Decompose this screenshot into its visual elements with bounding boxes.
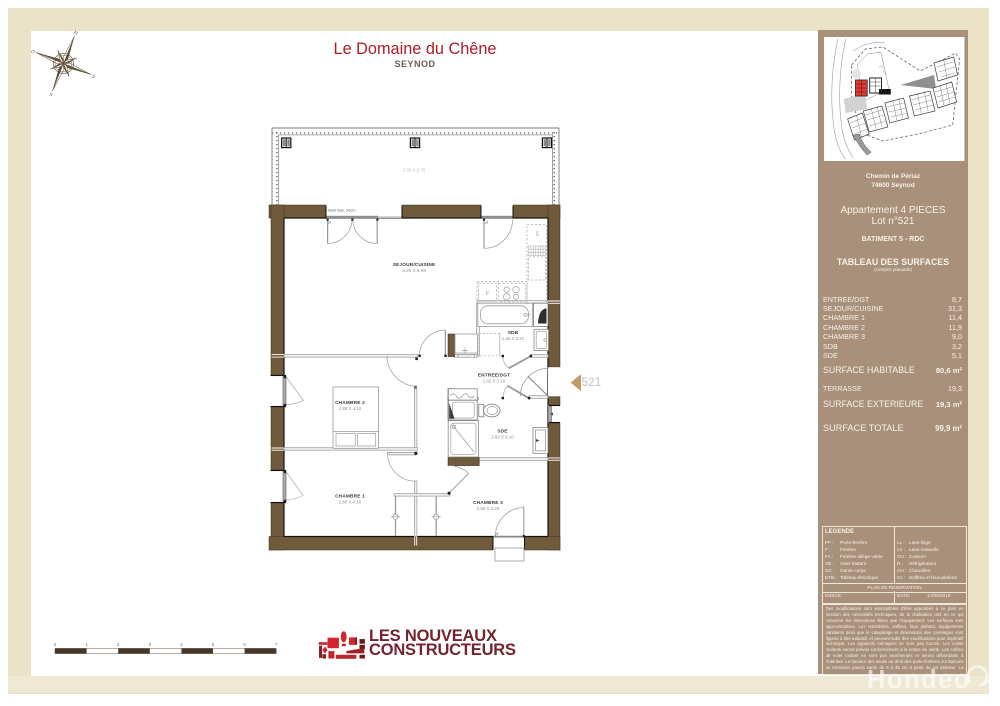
svg-text:2.56 X 4.25: 2.56 X 4.25	[477, 506, 500, 511]
svg-text:1.82 X 3.10: 1.82 X 3.10	[491, 434, 514, 439]
svg-text:O: O	[30, 49, 36, 55]
svg-text:7: 7	[275, 642, 278, 647]
svg-text:2.98 X 4.10: 2.98 X 4.10	[339, 406, 362, 411]
svg-text:6: 6	[243, 642, 246, 647]
svg-text:0: 0	[54, 642, 57, 647]
svg-text:Seuil max. 20cm: Seuil max. 20cm	[328, 209, 356, 213]
svg-text:E: E	[92, 73, 98, 79]
svg-text:1.46 X 2.21: 1.46 X 2.21	[502, 336, 525, 341]
svg-text:4: 4	[180, 642, 183, 647]
svg-text:2.80 X 4.10: 2.80 X 4.10	[339, 499, 362, 504]
svg-text:pf: pf	[328, 221, 331, 225]
svg-text:pf: pf	[496, 532, 499, 536]
svg-text:2: 2	[117, 642, 120, 647]
svg-text:LV: LV	[535, 231, 540, 237]
svg-text:3: 3	[149, 642, 152, 647]
svg-text:S: S	[49, 92, 55, 98]
svg-text:2.90 X 6.70: 2.90 X 6.70	[403, 168, 426, 173]
svg-text:4.29 X 6.09: 4.29 X 6.09	[402, 268, 426, 273]
svg-text:1.32 X 3.15: 1.32 X 3.15	[483, 378, 506, 383]
svg-text:5: 5	[212, 642, 215, 647]
svg-text:N: N	[73, 30, 79, 37]
svg-text:1: 1	[85, 642, 88, 647]
svg-text:F: F	[486, 291, 489, 297]
svg-text:521: 521	[582, 377, 602, 389]
svg-text:pf: pf	[486, 221, 489, 225]
